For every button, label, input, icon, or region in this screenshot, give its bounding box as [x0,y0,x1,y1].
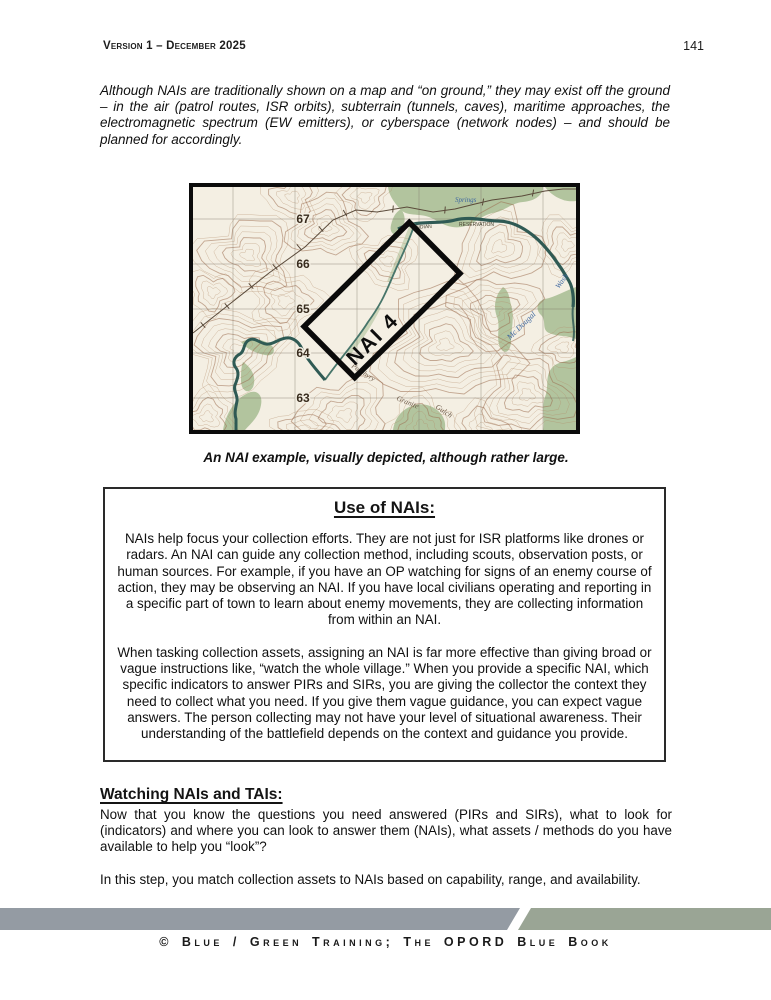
watching-title: Watching NAIs and TAIs: [100,786,672,804]
grid-number-64: 64 [296,346,310,360]
use-of-nais-paragraph-2: When tasking collection assets, assignin… [117,645,652,743]
reservation-label: RESERVATION [459,222,494,228]
grid-number-63: 63 [296,391,310,405]
springs-label: Springs [455,196,477,204]
watching-paragraph-2: In this step, you match collection asset… [100,872,672,888]
use-of-nais-title: Use of NAIs: [117,498,652,518]
use-of-nais-box: Use of NAIs: NAIs help focus your collec… [103,487,666,762]
topographic-map-figure: 67 66 65 64 63 Springs INDIAN RESERVATIO… [189,183,580,434]
grid-number-65: 65 [296,302,310,316]
intro-paragraph: Although NAIs are traditionally shown on… [100,83,670,148]
header-page-number: 141 [683,39,704,53]
header-version: Version 1 – December 2025 [103,40,246,52]
topographic-map: 67 66 65 64 63 Springs INDIAN RESERVATIO… [193,187,576,430]
grid-number-67: 67 [296,212,310,226]
footer-credit: © Blue / Green Training; The OPORD Blue … [0,935,771,949]
watching-section: Watching NAIs and TAIs: Now that you kno… [100,786,672,888]
footer-divider-bar [0,908,771,930]
document-page: Version 1 – December 2025 141 Although N… [0,0,771,1000]
use-of-nais-paragraph-1: NAIs help focus your collection efforts.… [117,531,652,629]
figure-caption: An NAI example, visually depicted, altho… [100,450,672,465]
watching-paragraph-1: Now that you know the questions you need… [100,807,672,856]
grid-number-66: 66 [296,257,310,271]
